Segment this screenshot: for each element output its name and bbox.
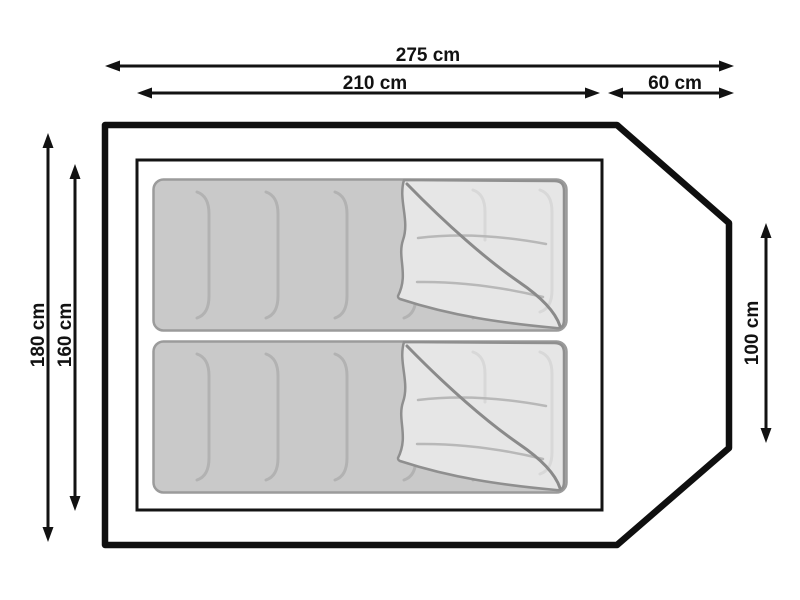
tent-floorplan-figure: 275 cm 210 cm 60 cm 180 cm 1 xyxy=(0,0,800,600)
dimension-label-outer-width: 180 cm xyxy=(28,303,49,367)
dimension-rear-width: 100 cm xyxy=(742,223,772,443)
arrowhead-down xyxy=(43,527,54,542)
sleeping-bag-1 xyxy=(154,180,567,331)
dimension-inner-length: 210 cm xyxy=(137,73,600,99)
arrowhead-left xyxy=(105,61,120,72)
dimension-porch-length: 60 cm xyxy=(608,73,734,99)
tent-floorplan-canvas: 275 cm 210 cm 60 cm 180 cm 1 xyxy=(0,0,800,600)
dimension-total-length: 275 cm xyxy=(105,45,734,72)
dimension-label-inner-width: 160 cm xyxy=(55,303,76,367)
dimension-label-porch-length: 60 cm xyxy=(648,73,702,94)
dimension-inner-width: 160 cm xyxy=(55,164,81,511)
arrowhead-up xyxy=(43,133,54,148)
arrowhead-right xyxy=(719,61,734,72)
arrowhead-right xyxy=(585,88,600,99)
dimension-label-inner-length: 210 cm xyxy=(343,73,407,94)
arrowhead-down xyxy=(761,428,772,443)
arrowhead-up xyxy=(70,164,81,179)
dimension-label-rear-width: 100 cm xyxy=(742,301,763,365)
sleeping-bag-2 xyxy=(154,342,567,493)
arrowhead-up xyxy=(761,223,772,238)
arrowhead-left xyxy=(608,88,623,99)
arrowhead-down xyxy=(70,496,81,511)
arrowhead-right xyxy=(719,88,734,99)
dimension-label-total-length: 275 cm xyxy=(396,45,460,66)
dimension-outer-width: 180 cm xyxy=(28,133,54,542)
arrowhead-left xyxy=(137,88,152,99)
